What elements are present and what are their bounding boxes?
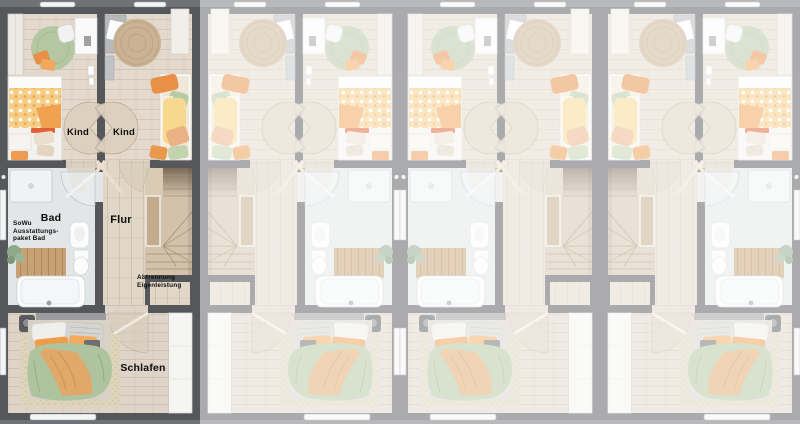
fade-overlay: [200, 0, 800, 424]
unit-1-floorplan-highlighted: [0, 2, 200, 420]
floorplan-canvas: [0, 0, 800, 424]
floorplan-render: Kind Kind Bad Flur Schlafen SoWu Ausstat…: [0, 0, 800, 424]
